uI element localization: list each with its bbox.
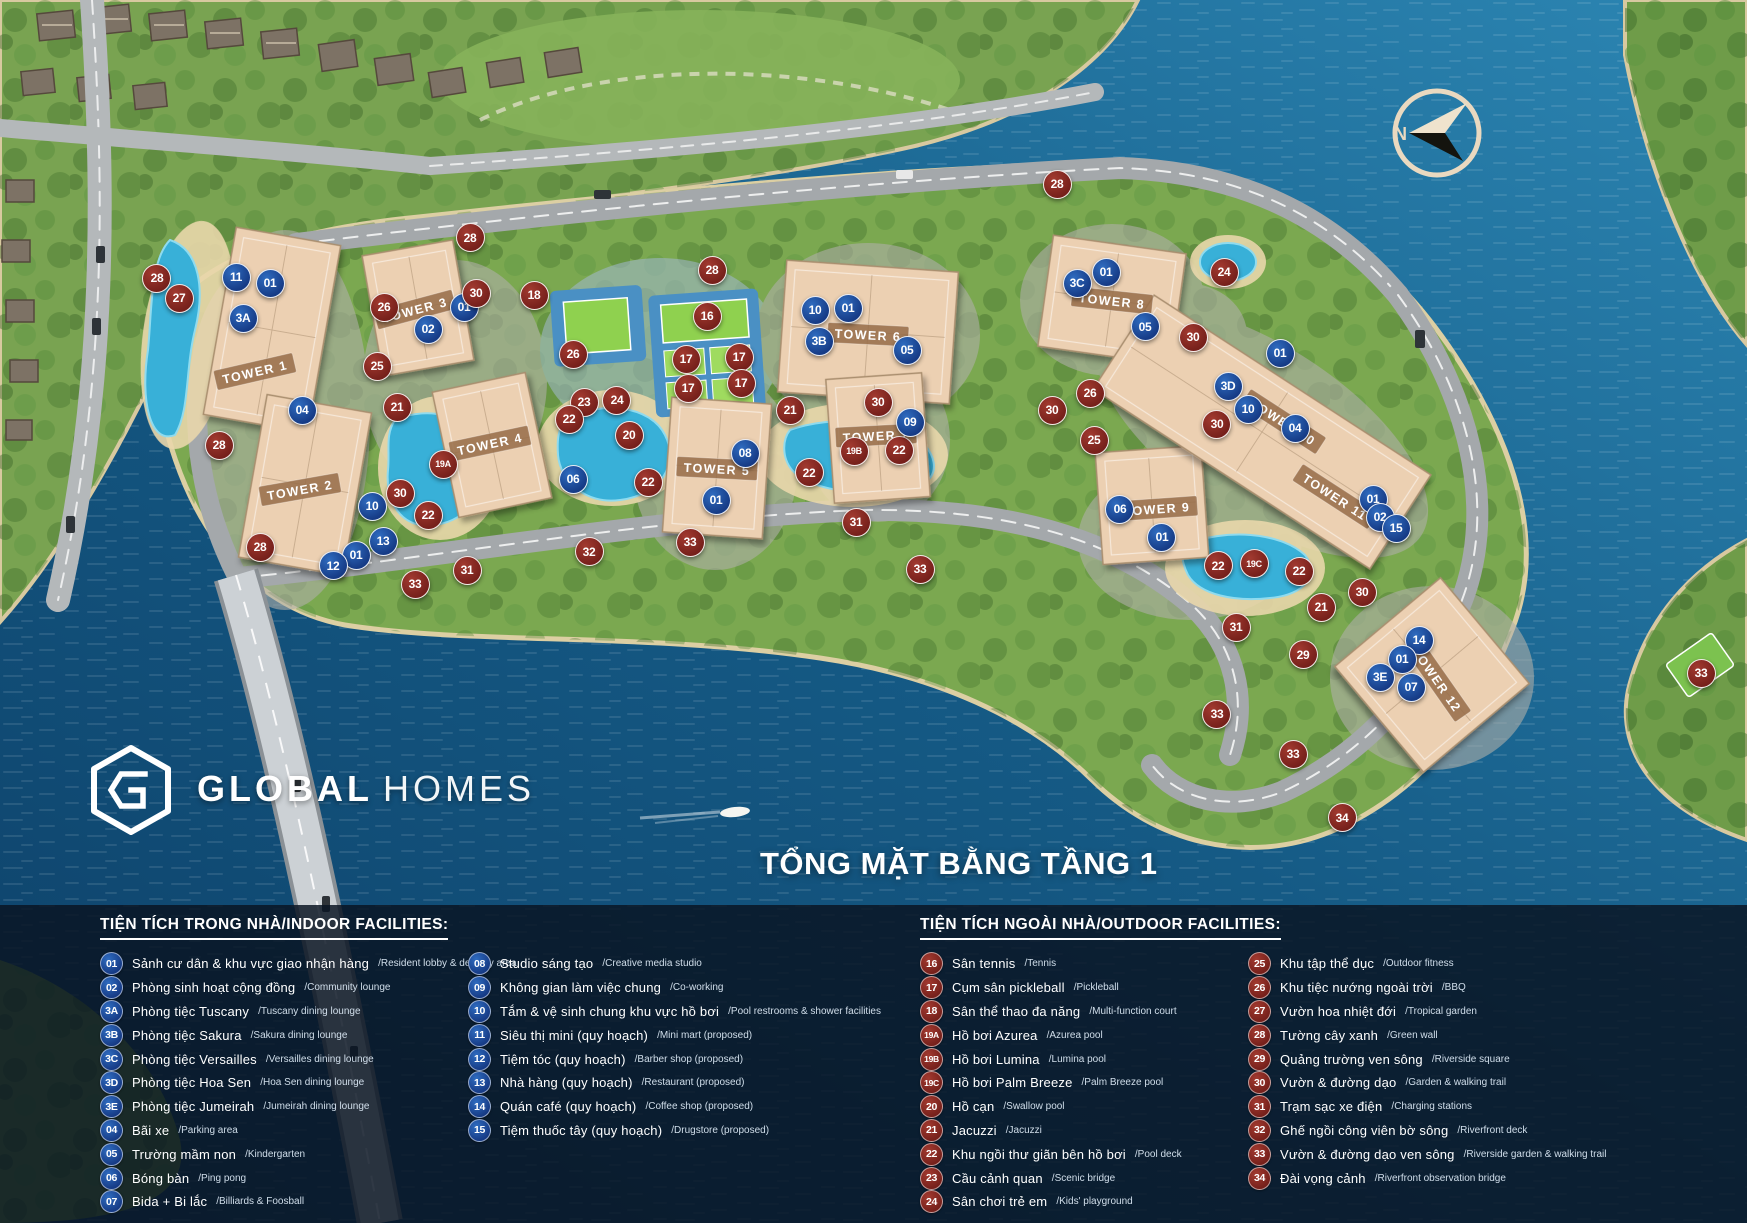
map-marker-22: 22 xyxy=(414,501,443,530)
map-marker-19A: 19A xyxy=(429,450,458,479)
legend-label-en: /Ping pong xyxy=(198,1173,246,1184)
map-marker-17: 17 xyxy=(674,374,703,403)
map-marker-10: 10 xyxy=(801,296,830,325)
legend-badge-17: 17 xyxy=(920,976,943,999)
legend-label-vi: Hồ bơi Azurea xyxy=(952,1028,1038,1043)
legend-label-vi: Phòng tiệc Hoa Sen xyxy=(132,1075,251,1090)
map-marker-25: 25 xyxy=(363,352,392,381)
legend-label-en: /Jacuzzi xyxy=(1006,1125,1042,1136)
map-marker-3D: 3D xyxy=(1214,372,1243,401)
legend-label-vi: Nhà hàng (quy hoạch) xyxy=(500,1075,633,1090)
map-marker-3E: 3E xyxy=(1366,663,1395,692)
legend-badge-21: 21 xyxy=(920,1119,943,1142)
map-marker-10: 10 xyxy=(1234,395,1263,424)
legend-item-16: 16Sân tennis/Tennis xyxy=(920,952,1182,976)
map-marker-3B: 3B xyxy=(805,327,834,356)
legend-label-en: /Swallow pool xyxy=(1003,1101,1064,1112)
map-marker-10: 10 xyxy=(358,492,387,521)
legend-label-en: /Tropical garden xyxy=(1405,1006,1477,1017)
map-marker-30: 30 xyxy=(1202,410,1231,439)
legend-label-en: /Coffee shop (proposed) xyxy=(645,1101,753,1112)
legend-badge-01: 01 xyxy=(100,952,123,975)
legend-badge-07: 07 xyxy=(100,1190,123,1213)
map-marker-01: 01 xyxy=(1147,523,1176,552)
map-marker-28: 28 xyxy=(246,533,275,562)
legend-item-3B: 3BPhòng tiệc Sakura/Sakura dining lounge xyxy=(100,1023,517,1047)
legend-label-en: /Garden & walking trail xyxy=(1405,1077,1506,1088)
map-marker-22: 22 xyxy=(795,458,824,487)
site-plan-poster: TOWER 1TOWER 2TOWER 3TOWER 4TOWER 5TOWER… xyxy=(0,0,1747,1223)
legend-label-en: /Community lounge xyxy=(304,982,390,993)
legend-badge-27: 27 xyxy=(1248,1000,1271,1023)
compass-icon: N xyxy=(1383,81,1487,185)
map-marker-22: 22 xyxy=(634,468,663,497)
legend-item-3E: 3EPhòng tiệc Jumeirah/Jumeirah dining lo… xyxy=(100,1095,517,1119)
legend-label-vi: Jacuzzi xyxy=(952,1123,997,1138)
map-marker-16: 16 xyxy=(693,302,722,331)
legend-label-vi: Sân chơi trẻ em xyxy=(952,1194,1047,1209)
map-marker-17: 17 xyxy=(725,343,754,372)
indoor-legend-col-2: 08Studio sáng tạo/Creative media studio0… xyxy=(468,952,881,1142)
map-marker-28: 28 xyxy=(456,223,485,252)
legend-badge-22: 22 xyxy=(920,1143,943,1166)
map-marker-18: 18 xyxy=(520,281,549,310)
legend-badge-3E: 3E xyxy=(100,1095,123,1118)
legend-item-02: 02Phòng sinh hoạt cộng đồng/Community lo… xyxy=(100,976,517,1000)
legend-label-en: /Charging stations xyxy=(1391,1101,1472,1112)
legend-item-19C: 19CHồ bơi Palm Breeze/Palm Breeze pool xyxy=(920,1071,1182,1095)
legend-label-vi: Hồ cạn xyxy=(952,1099,994,1114)
legend-item-3C: 3CPhòng tiệc Versailles/Versailles dinin… xyxy=(100,1047,517,1071)
map-marker-30: 30 xyxy=(1038,396,1067,425)
legend-label-vi: Quán café (quy hoạch) xyxy=(500,1099,636,1114)
legend-label-en: /Drugstore (proposed) xyxy=(671,1125,769,1136)
legend-label-en: /Kindergarten xyxy=(245,1149,305,1160)
legend-item-19A: 19AHồ bơi Azurea/Azurea pool xyxy=(920,1023,1182,1047)
map-marker-06: 06 xyxy=(1105,495,1134,524)
legend-label-vi: Sân tennis xyxy=(952,956,1015,971)
legend-label-en: /Palm Breeze pool xyxy=(1082,1077,1164,1088)
legend-label-vi: Khu tập thể dục xyxy=(1280,956,1374,971)
map-marker-19B: 19B xyxy=(840,437,869,466)
map-marker-01: 01 xyxy=(256,269,285,298)
legend-label-vi: Đài vọng cảnh xyxy=(1280,1171,1366,1186)
legend-label-vi: Tắm & vệ sinh chung khu vực hồ bơi xyxy=(500,1004,719,1019)
map-marker-27: 27 xyxy=(165,284,194,313)
legend-label-vi: Phòng tiệc Sakura xyxy=(132,1028,242,1043)
legend-item-08: 08Studio sáng tạo/Creative media studio xyxy=(468,952,881,976)
legend-label-vi: Tiệm thuốc tây (quy hoạch) xyxy=(500,1123,662,1138)
logo-text: GLOBALHOMES xyxy=(197,768,535,810)
legend-item-29: 29Quảng trường ven sông/Riverside square xyxy=(1248,1047,1606,1071)
legend-badge-29: 29 xyxy=(1248,1048,1271,1071)
legend-badge-20: 20 xyxy=(920,1095,943,1118)
legend-label-vi: Phòng tiệc Tuscany xyxy=(132,1004,249,1019)
legend-label-en: /BBQ xyxy=(1442,982,1466,993)
indoor-facilities-header: TIỆN TÍCH TRONG NHÀ/INDOOR FACILITIES: xyxy=(100,916,448,940)
legend-badge-3B: 3B xyxy=(100,1024,123,1047)
legend-label-en: /Riverside square xyxy=(1432,1054,1510,1065)
map-marker-25: 25 xyxy=(1080,426,1109,455)
legend-badge-26: 26 xyxy=(1248,976,1271,999)
map-marker-33: 33 xyxy=(906,555,935,584)
legend-label-en: /Lumina pool xyxy=(1049,1054,1106,1065)
legend-item-23: 23Cầu cảnh quan/Scenic bridge xyxy=(920,1166,1182,1190)
legend-label-vi: Khu tiệc nướng ngoài trời xyxy=(1280,980,1433,995)
map-marker-12: 12 xyxy=(319,551,348,580)
map-marker-30: 30 xyxy=(864,388,893,417)
legend-badge-19B: 19B xyxy=(920,1048,943,1071)
map-marker-33: 33 xyxy=(1279,740,1308,769)
map-marker-30: 30 xyxy=(462,279,491,308)
legend-badge-06: 06 xyxy=(100,1167,123,1190)
legend-item-19B: 19BHồ bơi Lumina/Lumina pool xyxy=(920,1047,1182,1071)
legend-badge-11: 11 xyxy=(468,1024,491,1047)
map-marker-05: 05 xyxy=(1131,312,1160,341)
legend-badge-30: 30 xyxy=(1248,1071,1271,1094)
legend-label-vi: Bóng bàn xyxy=(132,1171,189,1186)
legend-label-en: /Restaurant (proposed) xyxy=(642,1077,745,1088)
legend-label-vi: Phòng tiệc Jumeirah xyxy=(132,1099,254,1114)
legend-item-32: 32Ghế ngồi công viên bờ sông/Riverfront … xyxy=(1248,1119,1606,1143)
brand-logo: GLOBALHOMES xyxy=(85,742,535,836)
legend-item-21: 21Jacuzzi/Jacuzzi xyxy=(920,1119,1182,1143)
legend-badge-34: 34 xyxy=(1248,1167,1271,1190)
north-label: N xyxy=(1394,124,1407,144)
map-marker-22: 22 xyxy=(885,436,914,465)
legend-badge-25: 25 xyxy=(1248,952,1271,975)
map-marker-21: 21 xyxy=(383,393,412,422)
map-marker-20: 20 xyxy=(615,421,644,450)
map-marker-3A: 3A xyxy=(229,304,258,333)
legend-label-vi: Hồ bơi Lumina xyxy=(952,1052,1040,1067)
map-marker-01: 01 xyxy=(834,294,863,323)
legend-label-vi: Không gian làm việc chung xyxy=(500,980,661,995)
legend-badge-18: 18 xyxy=(920,1000,943,1023)
legend-item-13: 13Nhà hàng (quy hoạch)/Restaurant (propo… xyxy=(468,1071,881,1095)
legend-label-vi: Bãi xe xyxy=(132,1123,169,1138)
legend-badge-19C: 19C xyxy=(920,1071,943,1094)
map-marker-07: 07 xyxy=(1397,673,1426,702)
legend-item-06: 06Bóng bàn/Ping pong xyxy=(100,1166,517,1190)
legend-item-12: 12Tiệm tóc (quy hoạch)/Barber shop (prop… xyxy=(468,1047,881,1071)
map-marker-01: 01 xyxy=(1266,339,1295,368)
legend-label-vi: Trường mầm non xyxy=(132,1147,236,1162)
map-marker-24: 24 xyxy=(602,386,631,415)
legend-label-vi: Studio sáng tạo xyxy=(500,956,593,971)
indoor-legend-col-1: 01Sảnh cư dân & khu vực giao nhận hàng/R… xyxy=(100,952,517,1214)
legend-label-vi: Vườn & đường dạo ven sông xyxy=(1280,1147,1455,1162)
map-marker-34: 34 xyxy=(1328,803,1357,832)
legend-item-05: 05Trường mầm non/Kindergarten xyxy=(100,1142,517,1166)
legend-label-en: /Hoa Sen dining lounge xyxy=(260,1077,364,1088)
map-marker-21: 21 xyxy=(1307,593,1336,622)
legend-panel: TIỆN TÍCH TRONG NHÀ/INDOOR FACILITIES: T… xyxy=(0,905,1747,1223)
legend-item-33: 33Vườn & đường dạo ven sông/Riverside ga… xyxy=(1248,1142,1606,1166)
map-marker-15: 15 xyxy=(1382,514,1411,543)
map-marker-21: 21 xyxy=(776,396,805,425)
outdoor-legend-col-2: 25Khu tập thể dục/Outdoor fitness26Khu t… xyxy=(1248,952,1606,1190)
legend-item-3D: 3DPhòng tiệc Hoa Sen/Hoa Sen dining loun… xyxy=(100,1071,517,1095)
legend-label-en: /Mini mart (proposed) xyxy=(657,1030,752,1041)
legend-item-27: 27Vườn hoa nhiệt đới/Tropical garden xyxy=(1248,1000,1606,1024)
legend-item-34: 34Đài vọng cảnh/Riverfront observation b… xyxy=(1248,1166,1606,1190)
map-marker-19C: 19C xyxy=(1240,549,1269,578)
map-marker-28: 28 xyxy=(1043,170,1072,199)
legend-item-30: 30Vườn & đường dạo/Garden & walking trai… xyxy=(1248,1071,1606,1095)
legend-label-en: /Riverside garden & walking trail xyxy=(1464,1149,1607,1160)
legend-label-vi: Cầu cảnh quan xyxy=(952,1171,1043,1186)
map-marker-30: 30 xyxy=(1348,578,1377,607)
legend-item-18: 18Sân thể thao đa năng/Multi-function co… xyxy=(920,1000,1182,1024)
legend-badge-05: 05 xyxy=(100,1143,123,1166)
map-marker-31: 31 xyxy=(842,508,871,537)
legend-badge-02: 02 xyxy=(100,976,123,999)
legend-badge-12: 12 xyxy=(468,1048,491,1071)
legend-item-25: 25Khu tập thể dục/Outdoor fitness xyxy=(1248,952,1606,976)
legend-label-en: /Tennis xyxy=(1024,958,1056,969)
outdoor-legend-col-1: 16Sân tennis/Tennis17Cụm sân pickleball/… xyxy=(920,952,1182,1214)
map-marker-3C: 3C xyxy=(1063,269,1092,298)
map-marker-28: 28 xyxy=(205,431,234,460)
legend-item-24: 24Sân chơi trẻ em/Kids' playground xyxy=(920,1190,1182,1214)
map-marker-32: 32 xyxy=(575,537,604,566)
legend-item-3A: 3APhòng tiệc Tuscany/Tuscany dining loun… xyxy=(100,1000,517,1024)
map-marker-04: 04 xyxy=(1281,414,1310,443)
map-marker-01: 01 xyxy=(1092,258,1121,287)
legend-label-vi: Cụm sân pickleball xyxy=(952,980,1065,995)
logo-text-light: HOMES xyxy=(383,768,535,809)
legend-label-vi: Ghế ngồi công viên bờ sông xyxy=(1280,1123,1448,1138)
legend-label-en: /Parking area xyxy=(178,1125,237,1136)
legend-label-en: /Scenic bridge xyxy=(1052,1173,1115,1184)
legend-item-31: 31Trạm sạc xe điện/Charging stations xyxy=(1248,1095,1606,1119)
legend-badge-15: 15 xyxy=(468,1119,491,1142)
legend-label-vi: Phòng tiệc Versailles xyxy=(132,1052,257,1067)
legend-badge-13: 13 xyxy=(468,1071,491,1094)
map-marker-02: 02 xyxy=(414,315,443,344)
legend-item-01: 01Sảnh cư dân & khu vực giao nhận hàng/R… xyxy=(100,952,517,976)
map-marker-04: 04 xyxy=(288,396,317,425)
logo-text-bold: GLOBAL xyxy=(197,768,373,809)
legend-label-vi: Hồ bơi Palm Breeze xyxy=(952,1075,1073,1090)
map-marker-33: 33 xyxy=(401,570,430,599)
outdoor-facilities-header: TIỆN TÍCH NGOÀI NHÀ/OUTDOOR FACILITIES: xyxy=(920,916,1281,940)
map-marker-31: 31 xyxy=(453,556,482,585)
map-marker-33: 33 xyxy=(676,528,705,557)
legend-item-07: 07Bida + Bi lắc/Billiards & Foosball xyxy=(100,1190,517,1214)
legend-label-vi: Bida + Bi lắc xyxy=(132,1194,207,1209)
legend-label-en: /Azurea pool xyxy=(1047,1030,1103,1041)
legend-label-vi: Sân thể thao đa năng xyxy=(952,1004,1080,1019)
legend-label-vi: Sảnh cư dân & khu vực giao nhận hàng xyxy=(132,956,369,971)
legend-label-vi: Siêu thị mini (quy hoạch) xyxy=(500,1028,648,1043)
legend-item-10: 10Tắm & vệ sinh chung khu vực hồ bơi/Poo… xyxy=(468,1000,881,1024)
legend-label-vi: Khu ngồi thư giãn bên hồ bơi xyxy=(952,1147,1126,1162)
legend-item-09: 09Không gian làm việc chung/Co-working xyxy=(468,976,881,1000)
map-marker-11: 11 xyxy=(222,263,251,292)
legend-label-en: /Pool restrooms & shower facilities xyxy=(728,1006,881,1017)
legend-label-en: /Green wall xyxy=(1387,1030,1438,1041)
legend-badge-14: 14 xyxy=(468,1095,491,1118)
legend-label-en: /Versailles dining lounge xyxy=(266,1054,374,1065)
map-marker-01: 01 xyxy=(702,486,731,515)
map-marker-06: 06 xyxy=(559,465,588,494)
map-marker-13: 13 xyxy=(369,527,398,556)
legend-label-vi: Quảng trường ven sông xyxy=(1280,1052,1423,1067)
legend-badge-19A: 19A xyxy=(920,1024,943,1047)
page-title: TỔNG MẶT BẰNG TẦNG 1 xyxy=(760,846,1120,882)
legend-badge-31: 31 xyxy=(1248,1095,1271,1118)
legend-item-20: 20Hồ cạn/Swallow pool xyxy=(920,1095,1182,1119)
legend-badge-3A: 3A xyxy=(100,1000,123,1023)
legend-item-14: 14Quán café (quy hoạch)/Coffee shop (pro… xyxy=(468,1095,881,1119)
legend-badge-28: 28 xyxy=(1248,1024,1271,1047)
legend-badge-04: 04 xyxy=(100,1119,123,1142)
legend-item-22: 22Khu ngồi thư giãn bên hồ bơi/Pool deck xyxy=(920,1142,1182,1166)
legend-badge-24: 24 xyxy=(920,1190,943,1213)
map-marker-22: 22 xyxy=(555,405,584,434)
legend-label-en: /Pickleball xyxy=(1074,982,1119,993)
map-marker-30: 30 xyxy=(1179,323,1208,352)
legend-badge-33: 33 xyxy=(1248,1143,1271,1166)
legend-label-en: /Riverfront deck xyxy=(1457,1125,1527,1136)
legend-item-26: 26Khu tiệc nướng ngoài trời/BBQ xyxy=(1248,976,1606,1000)
legend-label-en: /Pool deck xyxy=(1135,1149,1182,1160)
map-marker-26: 26 xyxy=(559,340,588,369)
map-marker-30: 30 xyxy=(386,479,415,508)
map-marker-17: 17 xyxy=(672,345,701,374)
legend-label-vi: Trạm sạc xe điện xyxy=(1280,1099,1382,1114)
map-marker-28: 28 xyxy=(698,256,727,285)
legend-label-en: /Co-working xyxy=(670,982,723,993)
legend-badge-23: 23 xyxy=(920,1167,943,1190)
legend-label-vi: Tiệm tóc (quy hoạch) xyxy=(500,1052,626,1067)
map-marker-08: 08 xyxy=(731,439,760,468)
legend-label-en: /Kids' playground xyxy=(1056,1196,1132,1207)
legend-item-17: 17Cụm sân pickleball/Pickleball xyxy=(920,976,1182,1000)
map-marker-33: 33 xyxy=(1687,659,1716,688)
map-marker-26: 26 xyxy=(370,293,399,322)
legend-label-en: /Barber shop (proposed) xyxy=(635,1054,743,1065)
legend-label-en: /Multi-function court xyxy=(1089,1006,1176,1017)
map-marker-29: 29 xyxy=(1289,640,1318,669)
legend-badge-3C: 3C xyxy=(100,1048,123,1071)
map-marker-26: 26 xyxy=(1076,379,1105,408)
legend-label-vi: Tường cây xanh xyxy=(1280,1028,1378,1043)
legend-badge-10: 10 xyxy=(468,1000,491,1023)
legend-label-en: /Billiards & Foosball xyxy=(216,1196,304,1207)
legend-label-vi: Vườn & đường dạo xyxy=(1280,1075,1396,1090)
legend-item-04: 04Bãi xe/Parking area xyxy=(100,1119,517,1143)
legend-badge-32: 32 xyxy=(1248,1119,1271,1142)
map-marker-17: 17 xyxy=(727,369,756,398)
map-marker-22: 22 xyxy=(1204,551,1233,580)
legend-label-vi: Phòng sinh hoạt cộng đồng xyxy=(132,980,295,995)
legend-label-en: /Riverfront observation bridge xyxy=(1375,1173,1506,1184)
legend-label-en: /Sakura dining lounge xyxy=(251,1030,348,1041)
legend-item-11: 11Siêu thị mini (quy hoạch)/Mini mart (p… xyxy=(468,1023,881,1047)
legend-badge-09: 09 xyxy=(468,976,491,999)
map-marker-31: 31 xyxy=(1222,613,1251,642)
global-homes-logo-icon xyxy=(85,742,177,836)
map-marker-24: 24 xyxy=(1210,258,1239,287)
legend-badge-08: 08 xyxy=(468,952,491,975)
legend-label-en: /Outdoor fitness xyxy=(1383,958,1454,969)
map-marker-05: 05 xyxy=(893,336,922,365)
legend-item-28: 28Tường cây xanh/Green wall xyxy=(1248,1023,1606,1047)
map-marker-22: 22 xyxy=(1285,557,1314,586)
map-marker-09: 09 xyxy=(896,408,925,437)
legend-label-en: /Jumeirah dining lounge xyxy=(263,1101,369,1112)
legend-badge-3D: 3D xyxy=(100,1071,123,1094)
legend-badge-16: 16 xyxy=(920,952,943,975)
legend-label-en: /Creative media studio xyxy=(602,958,702,969)
legend-label-en: /Tuscany dining lounge xyxy=(258,1006,360,1017)
legend-label-vi: Vườn hoa nhiệt đới xyxy=(1280,1004,1396,1019)
legend-item-15: 15Tiệm thuốc tây (quy hoạch)/Drugstore (… xyxy=(468,1119,881,1143)
map-marker-28: 28 xyxy=(142,264,171,293)
map-marker-33: 33 xyxy=(1202,700,1231,729)
